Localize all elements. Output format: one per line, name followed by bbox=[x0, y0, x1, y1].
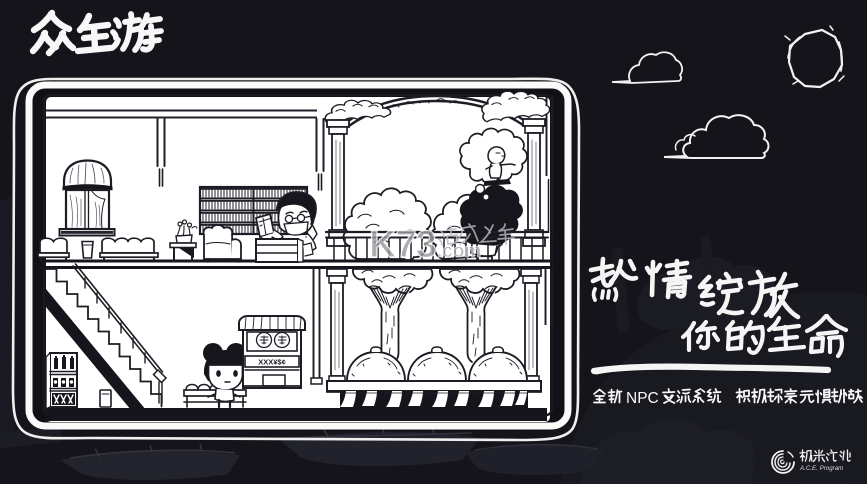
svg-text:NPC: NPC bbox=[626, 390, 659, 407]
svg-text:.com: .com bbox=[437, 241, 481, 262]
svg-text:K73: K73 bbox=[369, 224, 436, 266]
svg-text:A.C.E. Program: A.C.E. Program bbox=[799, 465, 843, 472]
svg-text:XXX¥$¢: XXX¥$¢ bbox=[258, 358, 286, 367]
